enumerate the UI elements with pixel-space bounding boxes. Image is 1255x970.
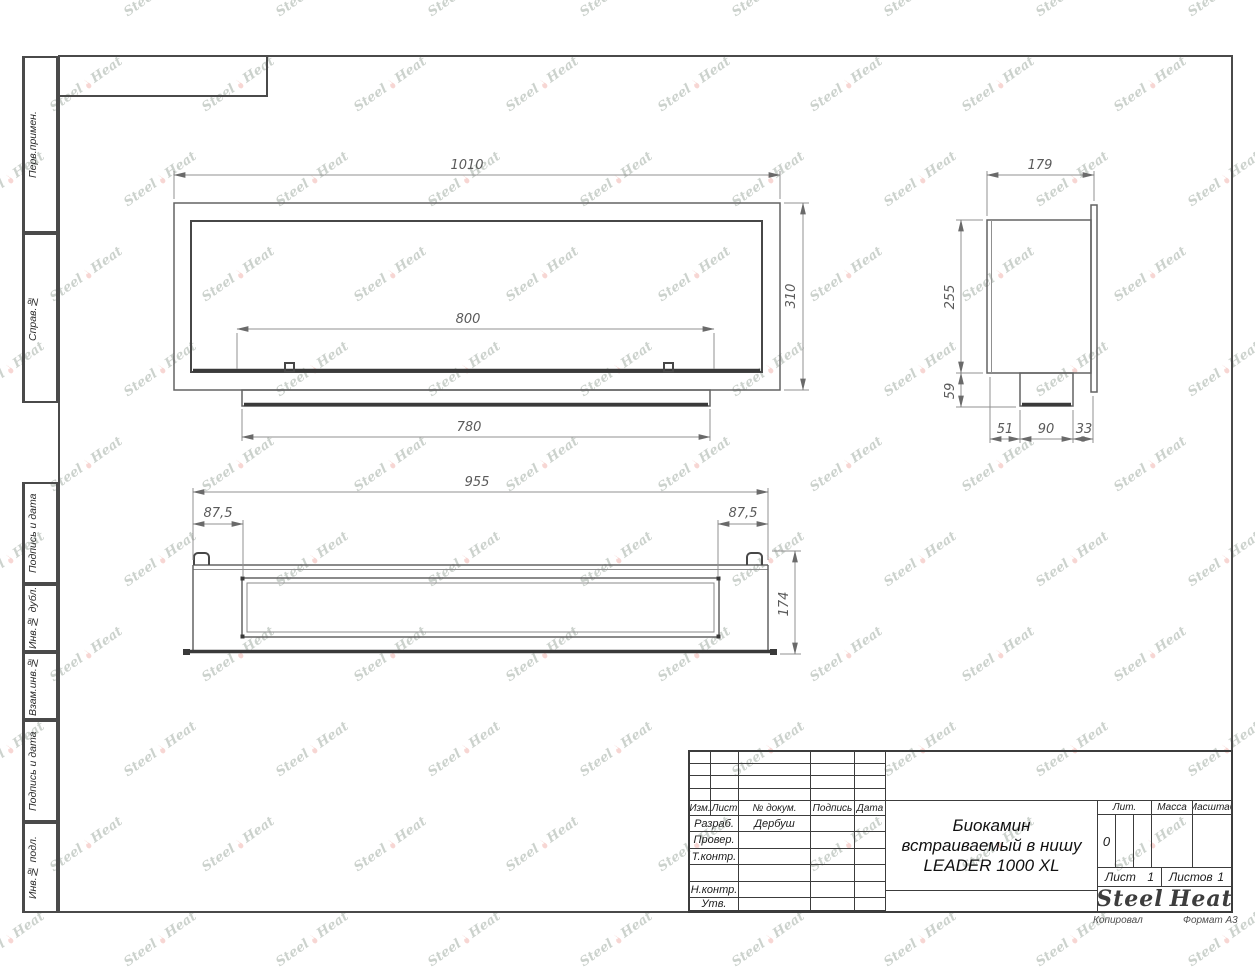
staff-row: Н.контр. [690, 882, 886, 898]
margin-box-perv-primen: Перв.примен. [22, 56, 58, 233]
staff-label: Утв. [690, 898, 739, 911]
staff-signature-cell [811, 865, 855, 882]
sheet-no-cell: Лист 1 [1098, 868, 1162, 887]
revision-row [690, 789, 886, 801]
margin-box-inv-podl: Инв.№ подл. [22, 822, 58, 913]
staff-signature-cell [811, 882, 855, 898]
revision-cell [739, 764, 811, 776]
revision-row [690, 776, 886, 789]
doc-title-line2: встраиваемый в нишу [902, 836, 1082, 856]
revision-cell [855, 752, 886, 764]
staff-label: Н.контр. [690, 882, 739, 898]
header-sign: Подпись [811, 801, 855, 816]
staff-signature-cell [811, 816, 855, 832]
staff-row [690, 865, 886, 882]
staff-date-cell [855, 865, 886, 882]
sheet-no-value: 1 [1147, 870, 1154, 884]
staff-signature-cell [811, 849, 855, 865]
margin-blank-cell [41, 235, 56, 401]
mass-value-cell [1152, 815, 1193, 868]
staff-label: Т.контр. [690, 849, 739, 865]
revision-cell [811, 752, 855, 764]
staff-label: Разраб. [690, 816, 739, 832]
revision-cell [711, 764, 739, 776]
copied-label: Копировал [1093, 915, 1143, 926]
staff-date-cell [855, 849, 886, 865]
revision-cell [739, 752, 811, 764]
company-logo: Steel Heat [1098, 887, 1231, 911]
revision-cell [739, 789, 811, 801]
revision-cell [811, 789, 855, 801]
staff-value [739, 882, 811, 898]
staff-date-cell [855, 816, 886, 832]
margin-blank-cell [41, 824, 56, 911]
margin-box-sprav-no: Справ.№ [22, 233, 58, 403]
sheets-total-cell: Листов 1 [1162, 868, 1231, 887]
revision-cell [690, 752, 711, 764]
revision-cell [711, 776, 739, 789]
header-date: Дата [855, 801, 886, 816]
staff-row: Провер. [690, 832, 886, 849]
header-doc: № докум. [739, 801, 811, 816]
revision-cell [739, 776, 811, 789]
staff-row: Т.контр. [690, 849, 886, 865]
margin-label: Инв.№ дубл. [24, 586, 41, 650]
reference-number-box [58, 55, 268, 97]
margin-label: Перв.примен. [24, 58, 41, 231]
staff-signature-cell [811, 898, 855, 911]
margin-blank-cell [41, 58, 56, 231]
margin-box-vzam-inv: Взам.инв.№ [22, 652, 58, 720]
revision-cell [690, 776, 711, 789]
designation-cell [886, 752, 1231, 801]
revision-cell [855, 764, 886, 776]
revision-row [690, 764, 886, 776]
staff-date-cell [855, 898, 886, 911]
staff-value [739, 832, 811, 849]
header-list: Лист [711, 801, 739, 816]
title-bottom-strip [886, 891, 1098, 913]
doc-title-line1: Биокамин [953, 816, 1031, 836]
margin-box-podpis-data-1: Подпись и дата [22, 482, 58, 584]
staff-date-cell [855, 832, 886, 849]
staff-value: Дербуш [739, 816, 811, 832]
sheets-total-value: 1 [1217, 870, 1224, 884]
logo-word-steel: Steel [1098, 887, 1164, 911]
lit-empty-cell [1116, 815, 1134, 868]
revision-cell [811, 764, 855, 776]
lit-empty-cell [1134, 815, 1152, 868]
margin-box-inv-dubl: Инв.№ дубл. [22, 584, 58, 652]
margin-label: Инв.№ подл. [24, 824, 41, 911]
sheets-total-label: Листов [1169, 870, 1213, 884]
scale-value-cell [1193, 815, 1231, 868]
margin-blank-cell [41, 654, 56, 718]
doc-title-line3: LEADER 1000 XL [923, 856, 1059, 876]
sheet-no-label: Лист [1105, 870, 1136, 884]
scale-header: Масштаб [1193, 801, 1231, 815]
margin-blank-cell [41, 586, 56, 650]
staff-label: Провер. [690, 832, 739, 849]
margin-label: Подпись и дата [24, 484, 41, 582]
lit-value-cell: 0 [1098, 815, 1116, 868]
lit-header: Лит. [1098, 801, 1152, 815]
doc-title-cell: Биокамин встраиваемый в нишу LEADER 1000… [886, 801, 1098, 891]
revision-cell [855, 776, 886, 789]
margin-label: Подпись и дата [24, 722, 41, 820]
staff-row: Разраб. Дербуш [690, 816, 886, 832]
revision-cell [855, 789, 886, 801]
revision-cell [711, 789, 739, 801]
revision-cell [690, 789, 711, 801]
margin-label: Взам.инв.№ [24, 654, 41, 718]
drawing-sheet: SteelHeatSteelHeatSteelHeatSteelHeatStee… [0, 0, 1255, 970]
format-label: Формат А3 [1183, 915, 1238, 926]
revision-header-row: Изм. Лист № докум. Подпись Дата [690, 801, 886, 816]
revision-cell [690, 764, 711, 776]
margin-label: Справ.№ [24, 235, 41, 401]
revision-row [690, 752, 886, 764]
margin-blank-cell [41, 484, 56, 582]
revision-cell [711, 752, 739, 764]
staff-value [739, 865, 811, 882]
staff-row: Утв. [690, 898, 886, 911]
mass-header: Масса [1152, 801, 1193, 815]
margin-box-podpis-data-2: Подпись и дата [22, 720, 58, 822]
header-izm: Изм. [690, 801, 711, 816]
staff-value [739, 898, 811, 911]
logo-word-heat: Heat [1170, 887, 1231, 911]
staff-label [690, 865, 739, 882]
revision-cell [811, 776, 855, 789]
margin-blank-cell [41, 722, 56, 820]
staff-value [739, 849, 811, 865]
title-block: Изм. Лист № докум. Подпись Дата Разраб. … [688, 750, 1233, 913]
staff-date-cell [855, 882, 886, 898]
staff-signature-cell [811, 832, 855, 849]
